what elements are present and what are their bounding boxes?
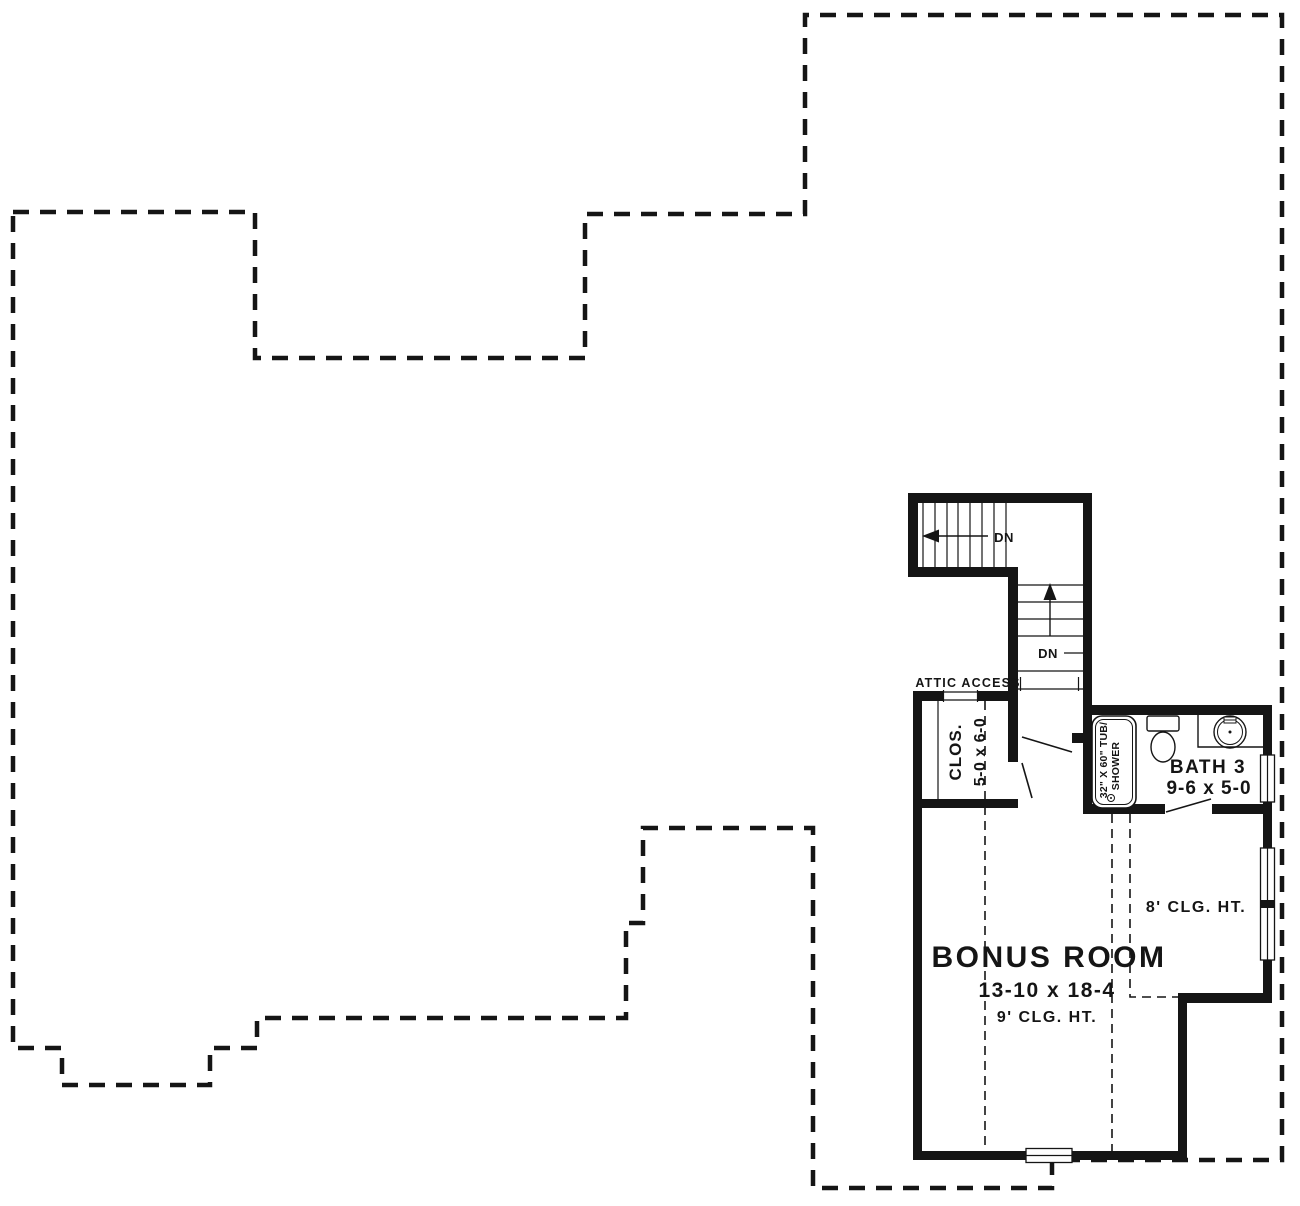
door-swing-bath [1166, 799, 1211, 812]
toilet [1147, 716, 1179, 762]
closet-dim-label: 5-0 x 6-0 [972, 718, 989, 787]
window-bath-right [1261, 755, 1275, 802]
wall [1083, 705, 1272, 715]
wall [1008, 700, 1018, 762]
window-mullion [1261, 900, 1275, 908]
wall [908, 567, 1018, 577]
bath-dim-label: 9-6 x 5-0 [1166, 778, 1251, 799]
vanity [1198, 715, 1263, 748]
wall [913, 691, 922, 1160]
closet-name-label: CLOS. [946, 724, 965, 781]
bonus-room-dim-label: 13-10 x 18-4 [978, 979, 1115, 1002]
floor-plan-drawing: ATTIC ACCESS DN DN CLOS. 5-0 x 6-0 32" X… [0, 0, 1300, 1206]
door-swing-closet [1022, 763, 1032, 798]
wall [913, 799, 1018, 808]
bonus-room-ceiling-label: 9' CLG. HT. [997, 1009, 1097, 1026]
tub-label-line1: 32" X 60" TUB/ [1098, 722, 1110, 798]
door-swing-hall [1022, 737, 1072, 752]
bath-name-label: BATH 3 [1170, 757, 1246, 778]
attic-access-opening [943, 690, 978, 702]
bonus-room-name-label: BONUS ROOM [932, 941, 1167, 974]
dn-label-lower: DN [1038, 646, 1058, 661]
window-bonus-bottom [1026, 1149, 1072, 1163]
wall [908, 493, 918, 577]
wall [1083, 715, 1092, 812]
wall [908, 493, 1092, 503]
wall [1178, 993, 1187, 1160]
dn-label-upper: DN [994, 530, 1014, 545]
toilet-tank [1147, 716, 1179, 731]
walls [908, 493, 1272, 1160]
tub-label-line2: SHOWER [1110, 742, 1122, 791]
wall [1178, 993, 1272, 1003]
attic-access-label: ATTIC ACCESS [915, 676, 1020, 690]
door-jamb [1072, 733, 1083, 743]
eight-ft-ceiling-label: 8' CLG. HT. [1146, 899, 1246, 916]
window-bonus-right [1261, 848, 1275, 960]
wall [1083, 493, 1092, 715]
stairs-lower-run [1018, 583, 1083, 691]
floor-plan-page: ATTIC ACCESS DN DN CLOS. 5-0 x 6-0 32" X… [0, 0, 1300, 1206]
stair-arrow-head-left [922, 530, 939, 543]
